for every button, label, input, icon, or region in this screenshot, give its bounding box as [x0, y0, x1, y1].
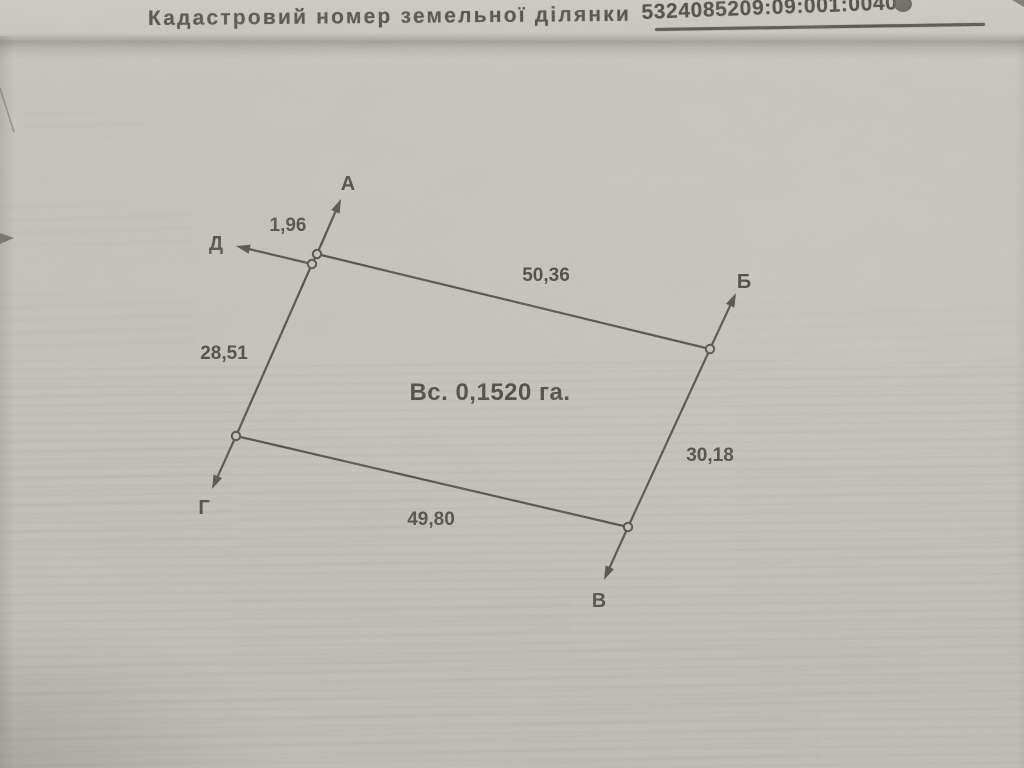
parcel-side-Б-В	[628, 349, 710, 527]
bleedthrough-band	[0, 204, 190, 247]
scanned-cadastral-page: АБВГД1,9650,3630,1849,8028,51Вс. 0,1520 …	[0, 0, 1024, 768]
vertex-arrowhead-Г	[212, 474, 222, 489]
bleedthrough-band	[545, 350, 776, 411]
paper-grain-overlay	[0, 0, 1024, 768]
vertex-letter-В: В	[592, 590, 606, 612]
fold-line-artifact	[0, 88, 14, 132]
parcel-side-Г-Д	[236, 264, 312, 436]
vertex-arrow-Д	[245, 248, 312, 264]
vertex-marker-Г	[232, 432, 240, 440]
fold-shadow	[0, 33, 1024, 59]
vertex-arrowhead-А	[331, 199, 341, 214]
vertex-arrowhead-В	[604, 565, 614, 580]
vertex-letter-Д: Д	[209, 233, 223, 255]
bleedthrough-band	[0, 436, 233, 555]
parcel-plan-svg: АБВГД1,9650,3630,1849,8028,51Вс. 0,1520 …	[0, 0, 1024, 768]
vertex-marker-А	[313, 250, 321, 258]
parcel-side-А-Б	[317, 254, 710, 349]
cadastral-number-label: Кадастровий номер земельної ділянки	[148, 3, 631, 31]
vertex-arrow-Г	[216, 436, 236, 481]
bleedthrough-band	[25, 111, 147, 139]
edge-mark-artifact	[0, 233, 14, 244]
scan-vignette	[0, 0, 1024, 768]
side-length-label-В-Г: 49,80	[407, 509, 455, 530]
vertex-arrowhead-Д	[236, 245, 251, 254]
vertex-arrowhead-Б	[726, 293, 736, 308]
parcel-side-В-Г	[236, 436, 628, 527]
vertex-marker-В	[624, 523, 632, 531]
parcel-area-label: Вс. 0,1520 га.	[409, 379, 570, 406]
vertex-letter-Б: Б	[737, 271, 751, 293]
bleedthrough-band	[0, 291, 196, 352]
vertex-arrow-А	[317, 207, 337, 254]
vertex-letter-А: А	[341, 173, 355, 195]
bleedthrough-band	[0, 702, 820, 768]
vertex-arrow-В	[608, 527, 628, 572]
scan-artifacts	[0, 0, 1024, 768]
vertex-arrow-Б	[710, 301, 732, 349]
paper-streak-texture	[0, 360, 1024, 768]
bleedthrough-band	[0, 381, 176, 405]
side-length-label-Г-Д: 28,51	[200, 343, 248, 364]
side-length-label-Б-В: 30,18	[686, 445, 734, 466]
bleedthrough-band	[225, 551, 437, 580]
side-length-label-А-Б: 50,36	[522, 265, 570, 286]
vertex-marker-Б	[706, 345, 714, 353]
vertex-letter-Г: Г	[198, 497, 209, 519]
side-length-label-Д-А: 1,96	[270, 215, 307, 236]
vertex-marker-Д	[308, 260, 316, 268]
bleedthrough-band	[240, 489, 431, 552]
parcel-side-Д-А	[312, 254, 317, 264]
bleedthrough-band	[0, 642, 920, 711]
bleedthrough-band	[230, 596, 573, 671]
bleedthrough-band	[732, 298, 1024, 702]
